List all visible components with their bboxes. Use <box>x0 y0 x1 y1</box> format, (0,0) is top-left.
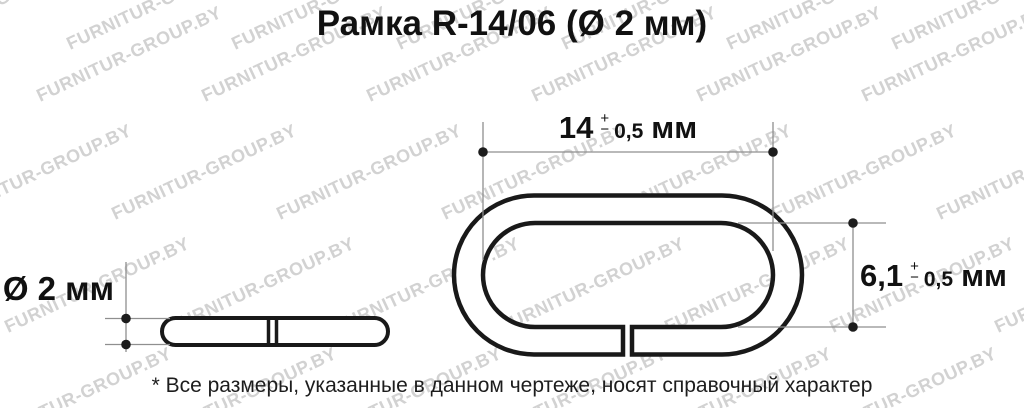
dimension-width-label: 14 +− 0,5 мм <box>483 110 773 146</box>
page-title: Рамка R-14/06 (Ø 2 мм) <box>0 4 1024 44</box>
dimension-height-value: 6,1 <box>860 258 903 294</box>
dimension-height-label: 6,1 +− 0,5 мм <box>860 258 1007 294</box>
dimension-endpoint-dot <box>121 314 131 324</box>
dimension-height-unit: мм <box>961 258 1007 294</box>
tolerance-sign: +− <box>910 261 919 283</box>
dimension-height-tolerance: 0,5 <box>924 268 953 292</box>
ring-top-view-outline <box>454 195 802 354</box>
footnote: * Все размеры, указанные в данном чертеж… <box>0 374 1024 398</box>
technical-drawing <box>0 0 1024 408</box>
dimension-endpoint-dot <box>848 218 858 228</box>
dimension-width-unit: мм <box>651 110 697 146</box>
dimension-endpoint-dot <box>848 322 858 332</box>
dimension-endpoint-dot <box>478 147 488 157</box>
dimension-width-tolerance: 0,5 <box>614 120 643 144</box>
minus-sign: − <box>600 124 609 135</box>
wire-diameter-label: Ø 2 мм <box>2 270 114 308</box>
dimension-width-value: 14 <box>559 110 593 146</box>
dimension-endpoint-dot <box>121 340 131 350</box>
minus-sign: − <box>910 272 919 283</box>
dimension-endpoint-dot <box>768 147 778 157</box>
drawing-page: FURNITUR-GROUP.BYFURNITUR-GROUP.BYFURNIT… <box>0 0 1024 408</box>
tolerance-sign: +− <box>600 113 609 135</box>
